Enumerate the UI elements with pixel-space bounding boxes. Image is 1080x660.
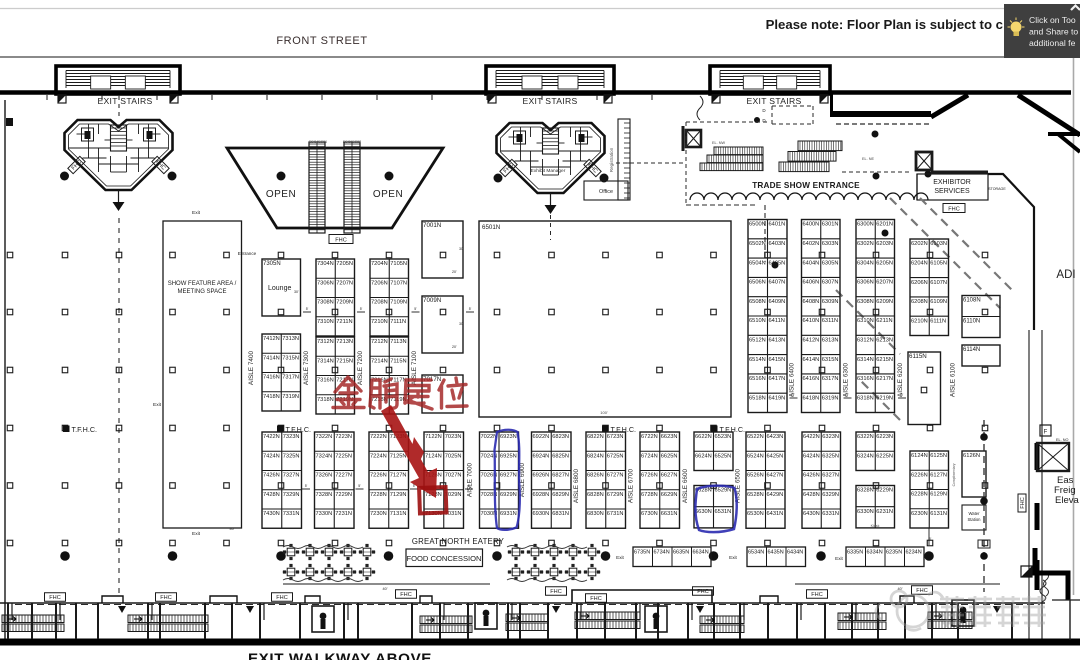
svg-text:7329N: 7329N xyxy=(283,492,300,498)
svg-text:6411N: 6411N xyxy=(769,318,785,324)
svg-text:6528N: 6528N xyxy=(747,492,764,498)
svg-text:6525N: 6525N xyxy=(715,453,732,459)
svg-text:6208N: 6208N xyxy=(911,299,928,305)
svg-text:6109N: 6109N xyxy=(930,299,947,305)
svg-text:6529N: 6529N xyxy=(715,488,732,494)
svg-text:6317N: 6317N xyxy=(822,376,839,382)
svg-text:FHC: FHC xyxy=(1020,497,1026,509)
svg-text:6328N: 6328N xyxy=(857,488,874,494)
svg-text:6401N: 6401N xyxy=(769,222,786,228)
svg-text:7207N: 7207N xyxy=(336,280,353,286)
svg-text:6425N: 6425N xyxy=(767,453,784,459)
svg-text:Lounge: Lounge xyxy=(268,285,291,292)
svg-text:6305N: 6305N xyxy=(822,260,839,266)
svg-text:Exit: Exit xyxy=(616,555,624,560)
svg-text:6310N: 6310N xyxy=(857,318,874,324)
svg-text:7412N: 7412N xyxy=(263,336,280,342)
svg-text:6325N: 6325N xyxy=(822,453,839,459)
svg-text:EL. NE: EL. NE xyxy=(862,157,874,161)
svg-text:Office: Office xyxy=(599,189,613,195)
svg-text:FHC: FHC xyxy=(697,589,709,595)
svg-text:7414N: 7414N xyxy=(263,355,280,361)
svg-text:6429N: 6429N xyxy=(767,492,784,498)
svg-text:AISLE 6300: AISLE 6300 xyxy=(843,363,850,398)
svg-text:EL. NO: EL. NO xyxy=(1056,438,1068,442)
svg-text:6203N: 6203N xyxy=(876,241,893,247)
svg-text:6322N: 6322N xyxy=(857,434,874,440)
svg-text:6234N: 6234N xyxy=(906,550,922,556)
svg-text:6311N: 6311N xyxy=(822,318,838,324)
svg-text:SHOW FEATURE AREA /: SHOW FEATURE AREA / xyxy=(168,281,237,287)
svg-text:6314N: 6314N xyxy=(857,357,874,363)
svg-text:Exit: Exit xyxy=(153,402,162,408)
svg-text:7027N: 7027N xyxy=(445,473,462,479)
svg-text:6413N: 6413N xyxy=(769,338,786,344)
svg-text:6502N: 6502N xyxy=(749,241,766,247)
svg-text:7330N: 7330N xyxy=(316,511,333,517)
svg-text:6728N: 6728N xyxy=(641,492,658,498)
svg-text:6823N: 6823N xyxy=(552,434,569,440)
svg-text:Complimentary: Complimentary xyxy=(952,463,956,486)
svg-text:AISLE 6800: AISLE 6800 xyxy=(573,469,580,504)
svg-text:6209N: 6209N xyxy=(876,299,893,305)
svg-text:7418N: 7418N xyxy=(263,394,280,400)
svg-text:6312N: 6312N xyxy=(857,338,874,344)
svg-text:30': 30' xyxy=(459,247,464,251)
svg-text:6734N: 6734N xyxy=(654,550,670,556)
svg-text:6430N: 6430N xyxy=(803,511,820,517)
svg-text:7109N: 7109N xyxy=(390,300,407,306)
svg-text:7206N: 7206N xyxy=(371,280,388,286)
svg-text:6228N: 6228N xyxy=(911,492,928,498)
svg-text:6426N: 6426N xyxy=(803,473,820,479)
svg-text:AISLE 6400: AISLE 6400 xyxy=(789,363,796,398)
svg-text:AISLE 6700: AISLE 6700 xyxy=(628,469,635,504)
svg-text:6826N: 6826N xyxy=(587,473,604,479)
svg-text:7430N: 7430N xyxy=(263,511,280,517)
svg-text:EXIT WALKWAY ABOVE: EXIT WALKWAY ABOVE xyxy=(248,651,432,660)
svg-text:6830N: 6830N xyxy=(587,511,604,517)
svg-text:40': 40' xyxy=(230,527,235,531)
svg-text:6402N: 6402N xyxy=(803,241,820,247)
svg-text:6204N: 6204N xyxy=(911,261,928,267)
svg-text:6316N: 6316N xyxy=(857,376,874,382)
svg-text:6627N: 6627N xyxy=(661,473,678,479)
svg-text:6324N: 6324N xyxy=(857,453,874,459)
svg-text:6309N: 6309N xyxy=(822,299,839,305)
svg-text:6931N: 6931N xyxy=(500,511,517,517)
svg-text:7325N: 7325N xyxy=(283,453,300,459)
svg-text:6501N: 6501N xyxy=(482,224,500,231)
svg-text:GREAT NORTH EATERY: GREAT NORTH EATERY xyxy=(412,537,505,546)
svg-text:6522N: 6522N xyxy=(747,434,764,440)
svg-text:7416N: 7416N xyxy=(263,375,280,381)
svg-text:6105N: 6105N xyxy=(930,261,947,267)
svg-text:6124N: 6124N xyxy=(911,453,928,459)
svg-text:6427N: 6427N xyxy=(767,473,784,479)
svg-text:additional fe: additional fe xyxy=(1029,38,1076,48)
svg-text:6423N: 6423N xyxy=(767,434,784,440)
svg-text:ADI: ADI xyxy=(1056,269,1075,281)
svg-text:5': 5' xyxy=(846,393,849,397)
svg-text:6930N: 6930N xyxy=(533,511,550,517)
svg-text:6235N: 6235N xyxy=(886,550,902,556)
svg-text:6329N: 6329N xyxy=(822,492,839,498)
svg-text:6225N: 6225N xyxy=(876,453,893,459)
svg-text:Water: Water xyxy=(968,511,980,516)
svg-text:AISLE 6600: AISLE 6600 xyxy=(682,469,689,504)
svg-text:5': 5' xyxy=(306,307,309,311)
svg-text:STORAGE: STORAGE xyxy=(988,187,1006,191)
svg-text:6400N: 6400N xyxy=(803,222,820,228)
svg-text:6824N: 6824N xyxy=(587,453,604,459)
svg-text:6735N: 6735N xyxy=(634,550,650,556)
svg-text:100': 100' xyxy=(600,410,608,415)
svg-text:Kiosk: Kiosk xyxy=(871,524,880,528)
svg-text:7226N: 7226N xyxy=(370,473,387,479)
svg-text:MEETING SPACE: MEETING SPACE xyxy=(178,289,227,295)
svg-text:6300N: 6300N xyxy=(857,222,874,228)
svg-text:AISLE 6100: AISLE 6100 xyxy=(950,363,957,398)
svg-text:7428N: 7428N xyxy=(263,492,280,498)
svg-text:6108N: 6108N xyxy=(963,298,981,304)
svg-text:7229N: 7229N xyxy=(335,492,352,498)
svg-text:7331N: 7331N xyxy=(283,511,300,517)
svg-text:6629N: 6629N xyxy=(661,492,678,498)
svg-text:6630N: 6630N xyxy=(695,509,712,515)
svg-text:EL. NW: EL. NW xyxy=(712,141,725,145)
svg-text:Entrance: Entrance xyxy=(238,251,257,256)
svg-text:6417N: 6417N xyxy=(769,376,786,382)
svg-text:7215N: 7215N xyxy=(336,358,353,364)
svg-text:7224N: 7224N xyxy=(370,453,387,459)
svg-text:6409N: 6409N xyxy=(769,299,786,305)
svg-text:6416N: 6416N xyxy=(803,376,820,382)
svg-text:6125N: 6125N xyxy=(930,453,947,459)
svg-text:7305N: 7305N xyxy=(263,261,281,267)
svg-text:7211N: 7211N xyxy=(336,319,352,325)
svg-text:F: F xyxy=(1044,430,1048,436)
svg-text:7009N: 7009N xyxy=(423,297,441,304)
svg-text:FHC: FHC xyxy=(335,237,347,243)
svg-text:7324N: 7324N xyxy=(316,453,333,459)
svg-text:6726N: 6726N xyxy=(641,473,658,479)
svg-text:Station: Station xyxy=(967,517,981,522)
svg-text:7225N: 7225N xyxy=(335,453,352,459)
svg-text:6622N: 6622N xyxy=(695,434,712,440)
svg-text:6412N: 6412N xyxy=(803,338,820,344)
svg-text:20': 20' xyxy=(452,345,457,349)
svg-text:FHC: FHC xyxy=(811,592,823,598)
svg-text:30': 30' xyxy=(294,290,299,294)
svg-text:6327N: 6327N xyxy=(822,473,839,479)
svg-text:7315N: 7315N xyxy=(282,355,299,361)
svg-text:6435N: 6435N xyxy=(768,550,784,556)
svg-text:EXIT STAIRS: EXIT STAIRS xyxy=(522,96,577,106)
svg-text:7127N: 7127N xyxy=(390,473,407,479)
svg-text:EXHIBITOR: EXHIBITOR xyxy=(933,179,971,186)
svg-text:Exit: Exit xyxy=(192,531,201,537)
svg-text:6926N: 6926N xyxy=(533,473,550,479)
svg-text:6825N: 6825N xyxy=(552,453,569,459)
svg-text:7131N: 7131N xyxy=(390,511,407,517)
svg-text:5': 5' xyxy=(468,484,471,488)
svg-text:7129N: 7129N xyxy=(390,492,407,498)
svg-text:6625N: 6625N xyxy=(661,453,678,459)
svg-text:7205N: 7205N xyxy=(336,261,353,267)
svg-text:6129N: 6129N xyxy=(930,492,947,498)
svg-text:7306N: 7306N xyxy=(317,280,334,286)
svg-text:20': 20' xyxy=(452,270,457,274)
svg-text:FHC: FHC xyxy=(590,596,602,602)
svg-text:6226N: 6226N xyxy=(911,472,928,478)
svg-text:FRONT STREET: FRONT STREET xyxy=(276,35,367,47)
svg-text:6925N: 6925N xyxy=(500,453,517,459)
svg-text:6331N: 6331N xyxy=(822,511,839,517)
svg-text:7212N: 7212N xyxy=(371,339,388,345)
svg-text:6230N: 6230N xyxy=(911,511,928,517)
svg-text:6201N: 6201N xyxy=(876,222,893,228)
svg-text:7317N: 7317N xyxy=(282,375,299,381)
svg-text:7107N: 7107N xyxy=(390,280,407,286)
svg-text:Exhibit Manager: Exhibit Manager xyxy=(531,168,566,174)
svg-text:T.F.H.C.: T.F.H.C. xyxy=(72,425,98,434)
svg-text:6730N: 6730N xyxy=(641,511,658,517)
svg-text:7326N: 7326N xyxy=(316,473,333,479)
svg-text:6415N: 6415N xyxy=(769,357,786,363)
svg-text:7223N: 7223N xyxy=(335,434,352,440)
svg-text:7312N: 7312N xyxy=(317,339,334,345)
svg-text:5': 5' xyxy=(414,307,417,311)
svg-text:6306N: 6306N xyxy=(857,280,874,286)
svg-text:6526N: 6526N xyxy=(747,473,764,479)
svg-text:7022N: 7022N xyxy=(481,434,498,440)
svg-text:7308N: 7308N xyxy=(317,300,334,306)
svg-text:6404N: 6404N xyxy=(803,260,820,266)
svg-text:6127N: 6127N xyxy=(930,472,947,478)
svg-text:Exit: Exit xyxy=(835,556,843,561)
svg-text:OPEN: OPEN xyxy=(373,189,403,200)
svg-text:6929N: 6929N xyxy=(500,492,517,498)
svg-text:6406N: 6406N xyxy=(803,280,820,286)
svg-text:6922N: 6922N xyxy=(533,434,550,440)
svg-text:6414N: 6414N xyxy=(803,357,820,363)
svg-text:6303N: 6303N xyxy=(822,241,839,247)
svg-text:6731N: 6731N xyxy=(607,511,624,517)
svg-text:FHC: FHC xyxy=(276,595,288,601)
svg-text:6516N: 6516N xyxy=(749,376,766,382)
svg-text:FHC: FHC xyxy=(160,595,172,601)
svg-text:6923N: 6923N xyxy=(500,434,517,440)
svg-text:6829N: 6829N xyxy=(552,492,569,498)
svg-text:6927N: 6927N xyxy=(500,473,517,479)
svg-text:Eleva: Eleva xyxy=(1055,495,1079,506)
svg-text:7113N: 7113N xyxy=(390,339,406,345)
svg-text:6103N: 6103N xyxy=(930,241,947,247)
svg-text:6219N: 6219N xyxy=(876,395,893,401)
svg-text:7304N: 7304N xyxy=(317,261,334,267)
svg-text:6506N: 6506N xyxy=(749,280,766,286)
svg-text:6206N: 6206N xyxy=(911,280,928,286)
svg-text:5': 5' xyxy=(305,484,308,488)
svg-text:6408N: 6408N xyxy=(803,299,820,305)
svg-text:6512N: 6512N xyxy=(749,338,766,344)
svg-text:7426N: 7426N xyxy=(263,473,280,479)
svg-text:FHC: FHC xyxy=(49,595,61,601)
svg-text:7313N: 7313N xyxy=(282,336,299,342)
svg-text:6530N: 6530N xyxy=(747,511,764,517)
svg-text:5': 5' xyxy=(360,307,363,311)
svg-text:6924N: 6924N xyxy=(533,453,550,459)
svg-text:AISLE 6200: AISLE 6200 xyxy=(897,363,904,398)
svg-text:6318N: 6318N xyxy=(857,395,874,401)
svg-text:6723N: 6723N xyxy=(607,434,624,440)
svg-text:6410N: 6410N xyxy=(803,318,820,324)
svg-text:7422N: 7422N xyxy=(263,434,280,440)
svg-text:40': 40' xyxy=(383,587,388,591)
svg-text:6223N: 6223N xyxy=(876,434,893,440)
svg-text:6202N: 6202N xyxy=(911,241,928,247)
svg-text:6635N: 6635N xyxy=(673,550,689,556)
svg-text:6508N: 6508N xyxy=(749,299,766,305)
svg-text:FHC: FHC xyxy=(948,206,960,212)
svg-text:6729N: 6729N xyxy=(607,492,624,498)
svg-text:6428N: 6428N xyxy=(803,492,820,498)
svg-text:7209N: 7209N xyxy=(336,300,353,306)
svg-text:6424N: 6424N xyxy=(803,453,820,459)
svg-text:7111N: 7111N xyxy=(390,319,406,325)
svg-text:6407N: 6407N xyxy=(769,280,786,286)
svg-text:7222N: 7222N xyxy=(370,434,387,440)
svg-text:Exit: Exit xyxy=(729,555,737,560)
svg-text:EXIT STAIRS: EXIT STAIRS xyxy=(97,96,152,106)
svg-text:30': 30' xyxy=(459,322,464,326)
svg-text:Registration: Registration xyxy=(609,147,614,172)
svg-text:7025N: 7025N xyxy=(445,453,462,459)
svg-text:7105N: 7105N xyxy=(390,261,407,267)
svg-text:6308N: 6308N xyxy=(857,299,874,305)
svg-text:6323N: 6323N xyxy=(822,434,839,440)
svg-text:6724N: 6724N xyxy=(641,453,658,459)
svg-text:6431N: 6431N xyxy=(767,511,784,517)
svg-text:6217N: 6217N xyxy=(876,376,893,382)
svg-text:6403N: 6403N xyxy=(769,241,786,247)
svg-text:6418N: 6418N xyxy=(803,395,820,401)
svg-text:6111N: 6111N xyxy=(930,318,946,324)
svg-text:7310N: 7310N xyxy=(317,319,334,325)
svg-text:7231N: 7231N xyxy=(335,511,352,517)
svg-text:6107N: 6107N xyxy=(930,280,947,286)
svg-text:6334N: 6334N xyxy=(867,550,883,556)
svg-text:6725N: 6725N xyxy=(607,453,624,459)
svg-text:6534N: 6534N xyxy=(748,550,764,556)
svg-text:6624N: 6624N xyxy=(695,453,712,459)
svg-text:6131N: 6131N xyxy=(930,511,947,517)
svg-text:6524N: 6524N xyxy=(747,453,764,459)
svg-text:6210N: 6210N xyxy=(911,318,928,324)
svg-text:7228N: 7228N xyxy=(370,492,387,498)
svg-text:6634N: 6634N xyxy=(693,550,709,556)
svg-text:FHC: FHC xyxy=(916,588,928,594)
svg-text:AISLE 7200: AISLE 7200 xyxy=(357,351,364,386)
svg-text:6531N: 6531N xyxy=(715,509,732,515)
svg-text:7328N: 7328N xyxy=(316,492,333,498)
svg-text:TRADE SHOW ENTRANCE: TRADE SHOW ENTRANCE xyxy=(752,181,860,190)
svg-text:7322N: 7322N xyxy=(316,434,333,440)
svg-text:7208N: 7208N xyxy=(371,300,388,306)
svg-text:6330N: 6330N xyxy=(857,509,874,515)
svg-text:6307N: 6307N xyxy=(822,280,839,286)
svg-text:EXIT STAIRS: EXIT STAIRS xyxy=(746,96,801,106)
svg-text:7125N: 7125N xyxy=(390,453,407,459)
svg-text:6205N: 6205N xyxy=(876,260,893,266)
svg-text:6504N: 6504N xyxy=(749,260,766,266)
svg-text:6434N: 6434N xyxy=(787,550,803,556)
svg-text:7023N: 7023N xyxy=(445,434,462,440)
svg-text:AISLE 7300: AISLE 7300 xyxy=(303,351,310,386)
svg-text:6419N: 6419N xyxy=(769,395,786,401)
svg-text:OPEN: OPEN xyxy=(266,189,296,200)
svg-text:6928N: 6928N xyxy=(533,492,550,498)
svg-text:6110N: 6110N xyxy=(963,319,980,325)
svg-text:6405N: 6405N xyxy=(769,260,786,266)
svg-text:6115N: 6115N xyxy=(909,353,927,360)
svg-text:6301N: 6301N xyxy=(822,222,839,228)
svg-text:ESC4ES26: ESC4ES26 xyxy=(309,140,327,144)
svg-text:6229N: 6229N xyxy=(876,488,893,494)
svg-text:6126N: 6126N xyxy=(963,453,980,459)
svg-text:FOOD CONCESSION: FOOD CONCESSION xyxy=(406,554,481,563)
svg-text:6623N: 6623N xyxy=(661,434,678,440)
svg-text:5': 5' xyxy=(901,393,904,397)
svg-text:6335N: 6335N xyxy=(847,550,863,556)
svg-text:6207N: 6207N xyxy=(876,280,893,286)
svg-text:6302N: 6302N xyxy=(857,241,874,247)
svg-text:6828N: 6828N xyxy=(587,492,604,498)
svg-text:6827N: 6827N xyxy=(552,473,569,479)
svg-text:Click on Too: Click on Too xyxy=(1029,15,1076,25)
svg-text:6213N: 6213N xyxy=(876,338,893,344)
svg-text:6510N: 6510N xyxy=(749,318,766,324)
svg-text:7214N: 7214N xyxy=(371,358,388,364)
svg-text:AISLE 7000: AISLE 7000 xyxy=(467,463,474,498)
svg-text:6315N: 6315N xyxy=(822,357,839,363)
svg-text:6518N: 6518N xyxy=(749,395,766,401)
svg-text:7213N: 7213N xyxy=(336,339,353,345)
svg-text:AISLE 7400: AISLE 7400 xyxy=(248,351,255,386)
svg-text:6114N: 6114N xyxy=(963,347,980,353)
svg-text:6304N: 6304N xyxy=(857,260,874,266)
svg-text:FHC: FHC xyxy=(400,592,412,598)
svg-text:6514N: 6514N xyxy=(749,357,766,363)
svg-text:7319N: 7319N xyxy=(282,394,299,400)
svg-text:6422N: 6422N xyxy=(803,434,820,440)
svg-text:7227N: 7227N xyxy=(335,473,352,479)
svg-text:5': 5' xyxy=(792,393,795,397)
svg-text:6313N: 6313N xyxy=(822,338,839,344)
svg-text:6231N: 6231N xyxy=(876,509,893,515)
svg-text:7115N: 7115N xyxy=(390,358,406,364)
svg-text:6722N: 6722N xyxy=(641,434,658,440)
svg-text:SERVICES: SERVICES xyxy=(934,188,970,195)
svg-text:FHC: FHC xyxy=(550,589,562,595)
svg-text:7424N: 7424N xyxy=(263,453,280,459)
svg-text:7327N: 7327N xyxy=(283,473,300,479)
svg-text:7210N: 7210N xyxy=(371,319,388,325)
svg-text:6500N: 6500N xyxy=(749,222,766,228)
svg-text:ESC6ES27: ESC6ES27 xyxy=(343,140,361,144)
svg-text:6211N: 6211N xyxy=(876,318,892,324)
